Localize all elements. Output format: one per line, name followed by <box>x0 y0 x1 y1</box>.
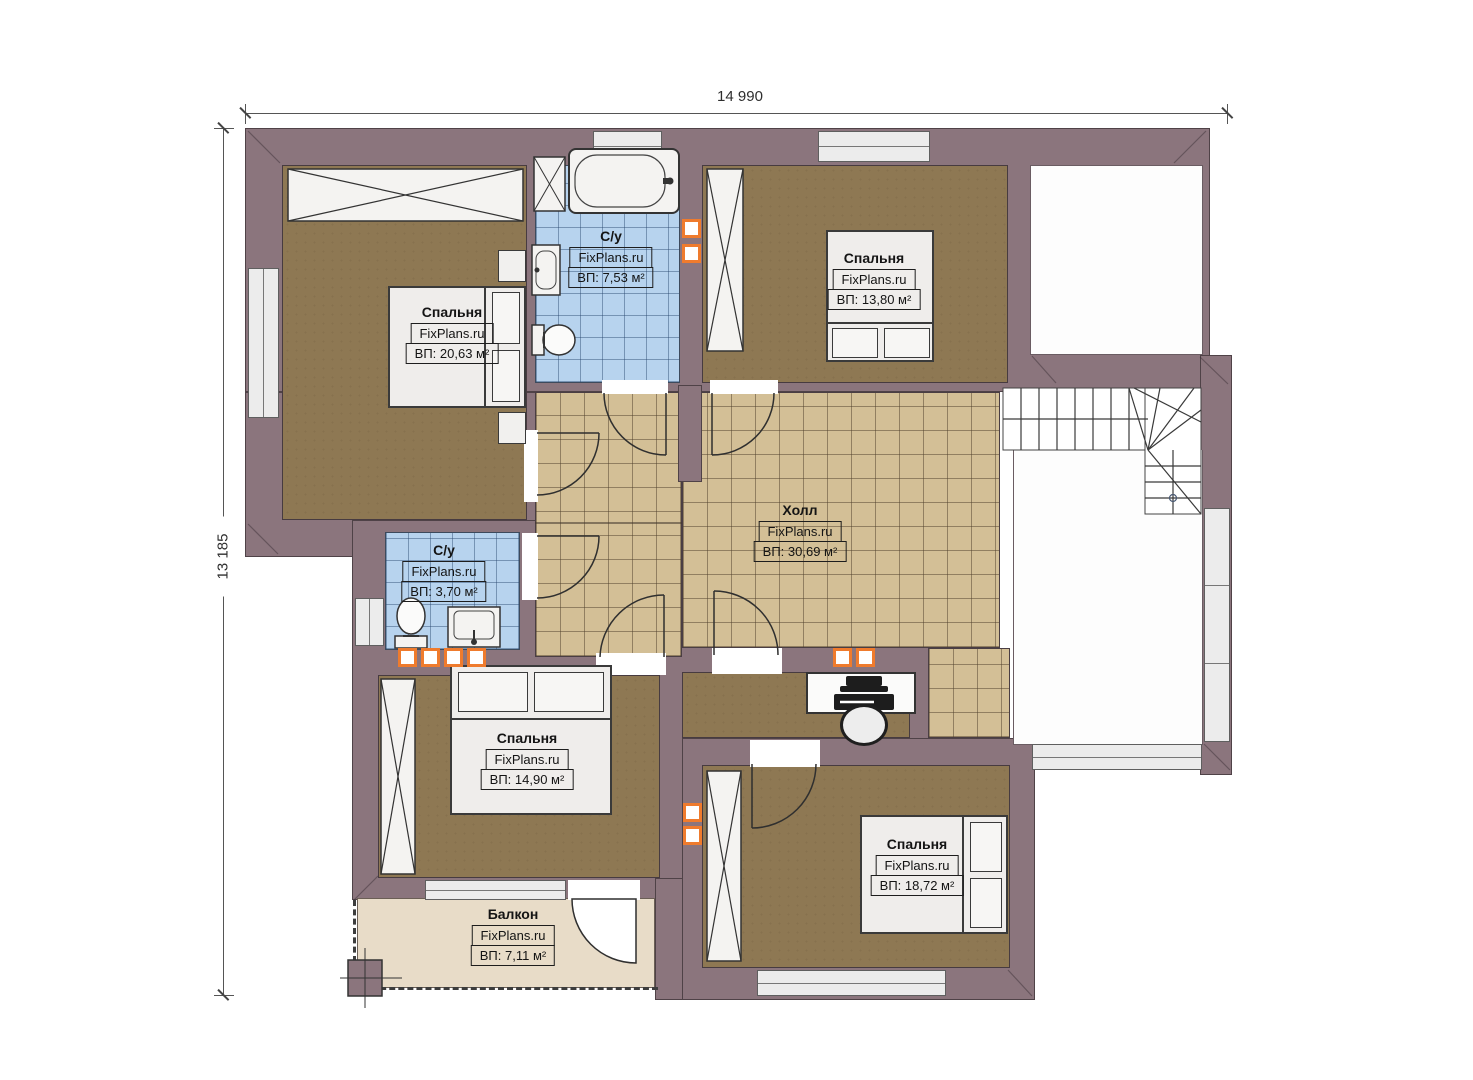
sink-icon <box>447 606 501 650</box>
room-area: ВП: 20,63 м² <box>406 343 499 364</box>
room-area: ВП: 7,53 м² <box>568 267 653 288</box>
room-label-balcony: Балкон FixPlans.ru ВП: 7,11 м² <box>471 906 555 966</box>
linen-cabinet-icon <box>533 156 566 212</box>
room-label-bathroom-small: С/у FixPlans.ru ВП: 3,70 м² <box>401 542 486 602</box>
wardrobe-icon <box>706 770 742 962</box>
vent-marker <box>444 648 463 667</box>
room-site: FixPlans.ru <box>410 323 493 344</box>
room-site: FixPlans.ru <box>471 925 554 946</box>
toilet-icon <box>531 318 577 362</box>
room-site: FixPlans.ru <box>485 749 568 770</box>
staircase <box>1000 352 1232 520</box>
room-name: С/у <box>433 542 455 558</box>
room-site: FixPlans.ru <box>758 521 841 542</box>
vent-marker <box>398 648 417 667</box>
room-area: ВП: 18,72 м² <box>871 875 964 896</box>
vent-marker <box>421 648 440 667</box>
room-label-hall: Холл FixPlans.ru ВП: 30,69 м² <box>754 502 847 562</box>
vent-marker <box>467 648 486 667</box>
vent-marker <box>856 648 875 667</box>
room-label-bathroom-top: С/у FixPlans.ru ВП: 7,53 м² <box>568 228 653 288</box>
wardrobe-icon <box>706 168 744 352</box>
room-name: Спальня <box>844 250 904 266</box>
room-label-bedroom-top-right: Спальня FixPlans.ru ВП: 13,80 м² <box>828 250 921 310</box>
room-label-bedroom-bottom-left: Спальня FixPlans.ru ВП: 14,90 м² <box>481 730 574 790</box>
room-label-bedroom-top-left: Спальня FixPlans.ru ВП: 20,63 м² <box>406 304 499 364</box>
toilet-icon <box>393 596 429 650</box>
wardrobe-icon <box>287 168 524 222</box>
bathtub-icon <box>568 148 680 214</box>
room-area: ВП: 30,69 м² <box>754 541 847 562</box>
room-site: FixPlans.ru <box>875 855 958 876</box>
floor-plan: 14 990 13 185 <box>0 0 1473 1080</box>
room-name: Холл <box>782 502 817 518</box>
vent-marker <box>682 219 701 238</box>
room-area: ВП: 13,80 м² <box>828 289 921 310</box>
room-site: FixPlans.ru <box>402 561 485 582</box>
sink-icon <box>531 244 561 296</box>
vent-marker <box>683 826 702 845</box>
office-chair <box>840 704 888 746</box>
room-name: Балкон <box>488 906 539 922</box>
room-name: Спальня <box>497 730 557 746</box>
wardrobe-icon <box>380 678 416 875</box>
room-label-bedroom-bottom-right: Спальня FixPlans.ru ВП: 18,72 м² <box>871 836 964 896</box>
room-site: FixPlans.ru <box>832 269 915 290</box>
vent-marker <box>833 648 852 667</box>
vent-marker <box>682 244 701 263</box>
room-name: Спальня <box>422 304 482 320</box>
room-name: Спальня <box>887 836 947 852</box>
room-area: ВП: 14,90 м² <box>481 769 574 790</box>
room-site: FixPlans.ru <box>569 247 652 268</box>
room-area: ВП: 3,70 м² <box>401 581 486 602</box>
room-area: ВП: 7,11 м² <box>471 945 555 966</box>
room-name: С/у <box>600 228 622 244</box>
vent-marker <box>683 803 702 822</box>
